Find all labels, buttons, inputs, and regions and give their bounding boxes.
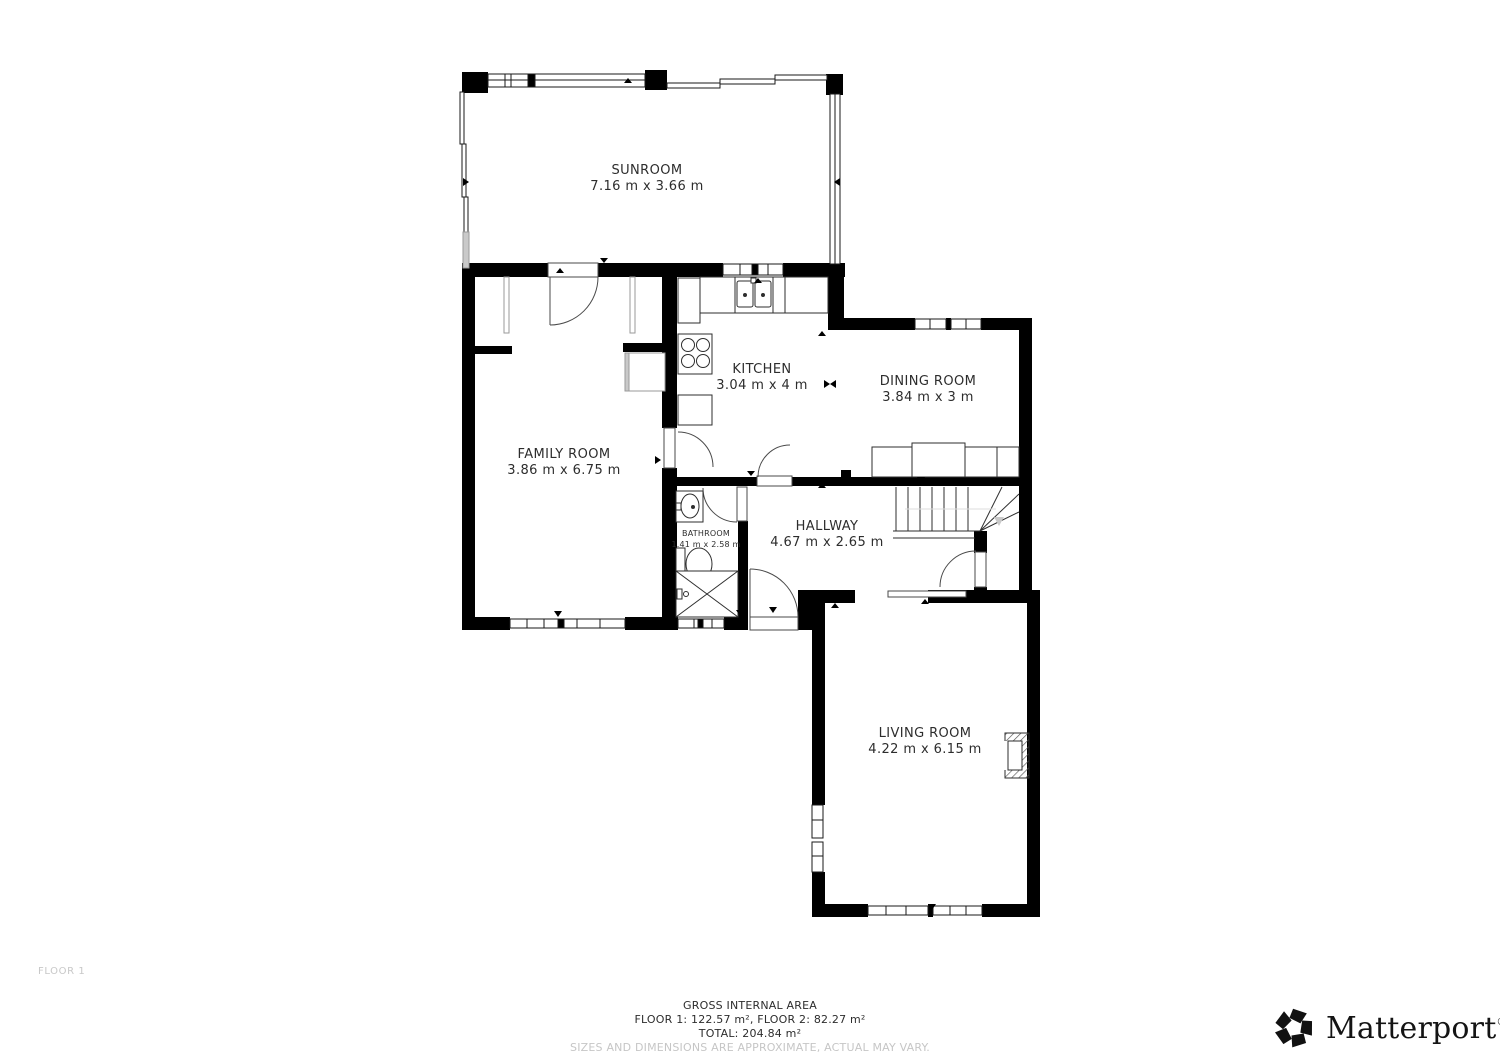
room-name: KITCHEN <box>716 362 808 378</box>
room-label-family-room: FAMILY ROOM 3.86 m x 6.75 m <box>507 447 620 479</box>
door-leaf <box>750 617 798 630</box>
kitchen-fixtures <box>678 277 828 425</box>
room-name: LIVING ROOM <box>868 726 981 742</box>
family-room-closet <box>504 277 665 391</box>
floorplan-page: SUNROOM 7.16 m x 3.66 m KITCHEN 3.04 m x… <box>0 0 1500 1061</box>
room-name: FAMILY ROOM <box>507 447 620 463</box>
shower-icon <box>676 571 738 617</box>
room-dims: 3.84 m x 3 m <box>880 390 976 406</box>
bathroom-fixtures <box>676 491 738 617</box>
door-leaf <box>975 552 986 587</box>
dining-cabinets <box>872 443 1019 477</box>
door-leaf <box>664 428 675 468</box>
matterport-icon <box>1272 1006 1316 1050</box>
stairs <box>893 487 1019 538</box>
bathroom-sink-icon <box>676 491 703 522</box>
room-label-bathroom: BATHROOM 1.41 m x 2.58 m <box>671 528 740 550</box>
fireplace-icon <box>1003 733 1029 778</box>
walls <box>462 70 1040 917</box>
kitchen-counter <box>678 395 712 425</box>
door-leaf <box>737 487 747 521</box>
room-label-kitchen: KITCHEN 3.04 m x 4 m <box>716 362 808 394</box>
room-label-living-room: LIVING ROOM 4.22 m x 6.15 m <box>868 726 981 758</box>
room-dims: 4.67 m x 2.65 m <box>770 535 883 551</box>
room-dims: 3.86 m x 6.75 m <box>507 463 620 479</box>
room-label-dining-room: DINING ROOM 3.84 m x 3 m <box>880 374 976 406</box>
room-name: BATHROOM <box>671 528 740 539</box>
room-name: SUNROOM <box>590 163 703 179</box>
room-name: HALLWAY <box>770 519 883 535</box>
door-leaf <box>548 263 598 277</box>
floor-selector-label: FLOOR 1 <box>38 966 85 977</box>
room-dims: 7.16 m x 3.66 m <box>590 179 703 195</box>
wall-markers <box>463 78 1038 910</box>
room-dims: 1.41 m x 2.58 m <box>671 539 740 550</box>
door-leaf <box>757 476 792 486</box>
matterport-logo: Matterport® <box>1272 1006 1500 1050</box>
sliding-door <box>888 591 966 597</box>
stove-icon <box>678 334 712 374</box>
floorplan-drawing <box>0 0 1500 1061</box>
room-dims: 4.22 m x 6.15 m <box>868 742 981 758</box>
kitchen-counter <box>678 278 700 323</box>
windows <box>460 74 982 915</box>
room-dims: 3.04 m x 4 m <box>716 378 808 394</box>
room-name: DINING ROOM <box>880 374 976 390</box>
matterport-wordmark: Matterport® <box>1326 1011 1500 1046</box>
room-label-sunroom: SUNROOM 7.16 m x 3.66 m <box>590 163 703 195</box>
registered-mark: ® <box>1496 1017 1500 1028</box>
room-label-hallway: HALLWAY 4.67 m x 2.65 m <box>770 519 883 551</box>
stair-direction-arrow <box>994 517 1004 526</box>
